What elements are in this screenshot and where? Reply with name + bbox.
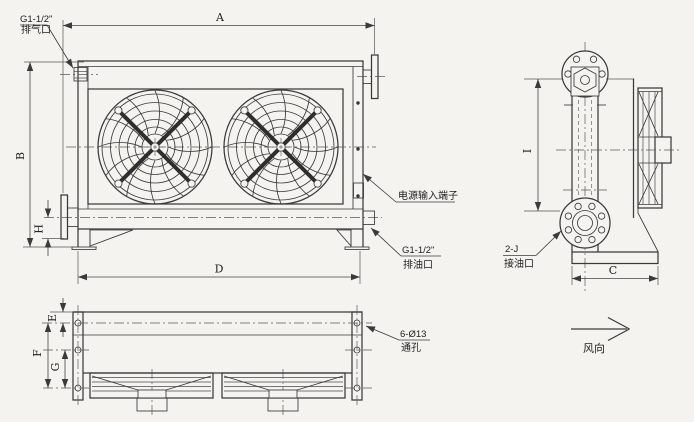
drain-port-spec: G1-1/2" <box>402 245 434 256</box>
callout-vent-port: G1-1/2" 排气口 <box>20 14 73 68</box>
fan-housing-left <box>90 373 213 411</box>
dim-label-b: B <box>14 152 27 160</box>
callout-drain-port: G1-1/2" 排油口 <box>371 228 441 271</box>
dim-label-h: H <box>33 224 46 234</box>
oil-ports-name: 接油口 <box>504 257 534 270</box>
left-oil-flange <box>61 195 78 239</box>
top-flange <box>562 51 608 97</box>
drain-port-name: 排油口 <box>403 258 433 271</box>
oil-ports-spec: 2-J <box>505 244 518 255</box>
dim-label-i: I <box>521 149 534 153</box>
bolt-dot <box>356 194 359 197</box>
dimension-b: B <box>14 62 97 247</box>
fan-shroud-side <box>556 79 680 219</box>
bolt-dot <box>356 101 359 104</box>
dimension-h: H <box>33 200 65 256</box>
dim-label-f: F <box>31 349 44 357</box>
callout-power-terminal: 电源输入端子 <box>363 174 458 202</box>
fan-housing-right <box>222 373 345 411</box>
dim-label-a: A <box>215 11 225 24</box>
dimension-g: G <box>49 350 65 388</box>
side-view <box>556 42 680 292</box>
bolt-dot <box>356 147 359 150</box>
dim-label-d: D <box>215 263 224 276</box>
dimension-d: D <box>78 251 360 284</box>
bottom-view <box>42 305 372 415</box>
dim-label-c: C <box>609 264 617 277</box>
engineering-drawing: A B H D G1-1/2" 排气口 电源输入端子 G1-1/2" 排油口 <box>0 0 694 422</box>
power-terminal-name: 电源输入端子 <box>398 189 458 202</box>
mounting-feet <box>72 229 369 250</box>
dimension-e: E <box>46 298 74 337</box>
mounting-holes-name: 通孔 <box>401 342 421 354</box>
dimension-f: F <box>31 323 48 388</box>
dim-label-g: G <box>49 363 62 372</box>
fan-panel <box>88 89 343 204</box>
dimension-i: I <box>521 79 633 211</box>
dimension-a: A <box>63 11 375 193</box>
callout-oil-ports: 2-J 接油口 <box>503 231 561 270</box>
mounting-holes-spec: 6-Ø13 <box>400 329 426 340</box>
air-flow-label: 风向 <box>583 341 605 355</box>
front-view <box>44 55 385 250</box>
front-view-body <box>78 61 364 229</box>
bottom-flange <box>560 198 610 248</box>
vent-port-spec: G1-1/2" <box>20 14 52 25</box>
dim-label-e: E <box>46 314 59 322</box>
callout-mounting-holes: 6-Ø13 通孔 <box>366 326 430 354</box>
air-flow-indicator: 风向 <box>571 318 630 356</box>
